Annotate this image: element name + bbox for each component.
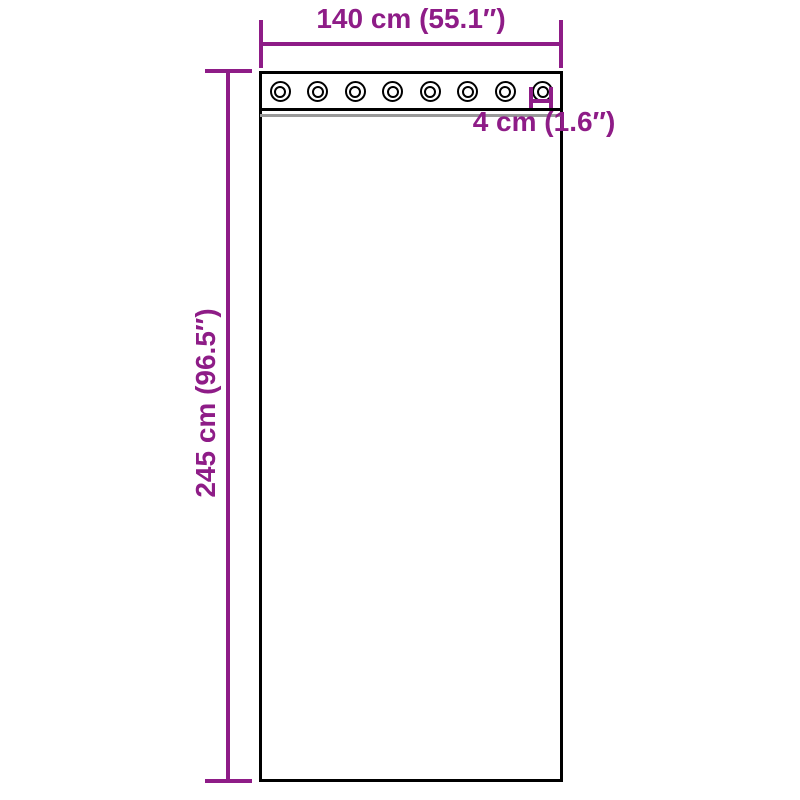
height-dimension-cap-top [205, 69, 252, 73]
bracket-tick-left [529, 87, 533, 108]
grommet-hole [424, 86, 436, 98]
width-dimension-label: 140 cm (55.1″) [259, 3, 563, 35]
width-dimension-line [259, 42, 563, 46]
grommet-icon [457, 81, 478, 102]
grommet-hole [349, 86, 361, 98]
grommet-icon [270, 81, 291, 102]
height-dimension-line [226, 71, 230, 782]
grommet-hole [274, 86, 286, 98]
grommet-hole [499, 86, 511, 98]
grommet-hole [462, 86, 474, 98]
grommet-icon [382, 81, 403, 102]
diagram-canvas: 140 cm (55.1″) 245 cm (96.5″) 4 cm (1.6″… [0, 0, 800, 800]
grommet-hole [387, 86, 399, 98]
height-dimension-label: 245 cm (96.5″) [190, 243, 222, 563]
height-dimension-cap-bottom [205, 779, 252, 783]
grommet-hole [537, 86, 549, 98]
grommet-hole [312, 86, 324, 98]
grommet-icon [420, 81, 441, 102]
grommet-icon [345, 81, 366, 102]
curtain-panel [259, 71, 563, 782]
bracket-tick-right [549, 87, 553, 108]
grommet-icon [495, 81, 516, 102]
grommet-dimension-label: 4 cm (1.6″) [444, 106, 644, 138]
bracket-bar [529, 99, 553, 103]
grommet-icon [307, 81, 328, 102]
